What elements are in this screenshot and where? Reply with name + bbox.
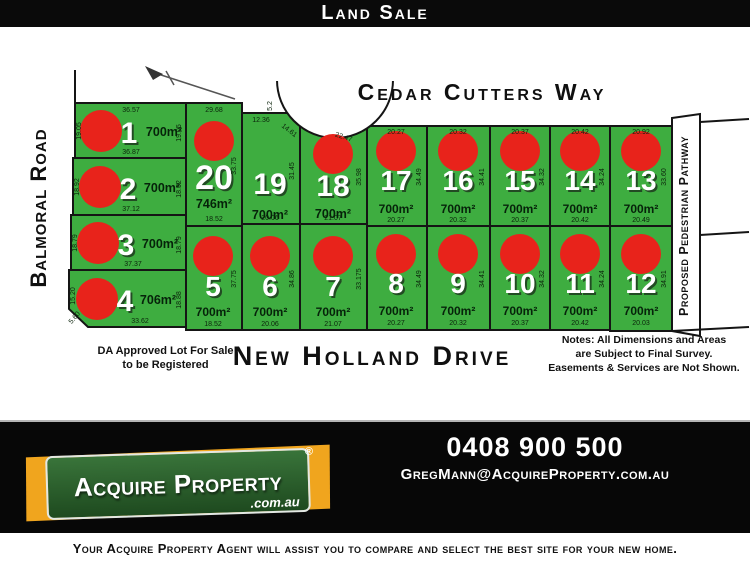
lot-14-number: 14 <box>564 165 596 196</box>
lot-8-area: 700m² <box>379 304 414 318</box>
lot-15-dim-top: 20.37 <box>511 129 529 136</box>
survey-note-line3: Easements & Services are Not Shown. <box>538 361 750 375</box>
lot-3-area: 700m² <box>142 237 178 251</box>
lot-2-dim-left: 18.92 <box>74 178 81 196</box>
survey-note-line2: are Subject to Final Survey. <box>538 347 750 361</box>
lot-4-dim-left: 15.20 <box>70 287 77 305</box>
lot-4-area: 706m² <box>140 293 176 307</box>
tagline-strip: Your Acquire Property Agent will assist … <box>0 533 750 563</box>
cul-de-sac-mask <box>275 27 397 81</box>
phone-number[interactable]: 0408 900 500 <box>370 432 700 463</box>
lot-12-number: 12 <box>625 268 656 299</box>
lot-17-area: 700m² <box>379 202 414 216</box>
lot-17-dim-bottom: 20.27 <box>387 217 405 224</box>
registered-trademark-icon: ® <box>305 446 313 458</box>
lot-3-dim-left: 18.79 <box>72 234 79 252</box>
da-approved-note: DA Approved Lot For Sale to be Registere… <box>88 344 243 372</box>
lot-8-number: 8 <box>388 268 404 299</box>
lot-20-dim-right: 33.75 <box>231 157 238 175</box>
lot-13-number: 13 <box>625 165 656 196</box>
lot-15-dim-right: 34.32 <box>539 168 546 186</box>
lot-5-dim-right: 37.75 <box>231 270 238 288</box>
lot-6-red-dot <box>250 236 290 276</box>
lot-5-dim-bottom: 18.52 <box>204 321 222 328</box>
lot-16-dim-bottom: 20.32 <box>449 217 467 224</box>
lot-15-area: 700m² <box>503 202 538 216</box>
lot-5-number: 5 <box>205 271 221 302</box>
lot-3-dim-right: 18.79 <box>176 236 183 254</box>
lot-6-dim-bottom: 20.06 <box>261 321 279 328</box>
lot-18-number: 18 <box>316 170 349 203</box>
survey-note-line1: Notes: All Dimensions and Areas <box>538 333 750 347</box>
lot-11-dim-bottom: 20.42 <box>571 320 589 327</box>
lot-4-number: 4 <box>117 285 134 318</box>
lot-14-dim-right: 34.24 <box>599 168 606 186</box>
lot-13-dim-top: 20.92 <box>632 129 650 136</box>
lot-2-dim-bottom: 37.12 <box>122 206 140 213</box>
street-cedar-cutters-way: Cedar Cutters Way <box>358 79 607 105</box>
email-address[interactable]: GregMann@AcquireProperty.com.au <box>370 466 700 483</box>
lot-11-dim-right: 34.24 <box>599 270 606 288</box>
lot-18-dim-bottom: 21.07 <box>324 215 342 222</box>
lot-9-dim-bottom: 20.32 <box>449 320 467 327</box>
lot-16-dim-right: 34.41 <box>479 168 486 186</box>
lot-9-number: 9 <box>450 268 466 299</box>
lot-15-number: 15 <box>504 165 535 196</box>
lot-16-area: 700m² <box>441 202 476 216</box>
da-note-line1: DA Approved Lot For Sale <box>88 344 243 358</box>
boundary-tick-top <box>700 119 749 122</box>
street-new-holland-drive: New Holland Drive <box>233 341 512 371</box>
lot-7-area: 700m² <box>316 305 351 319</box>
page-title: Land Sale <box>321 2 428 25</box>
lot-10-dim-bottom: 20.37 <box>511 320 529 327</box>
lot-5-area: 700m² <box>196 305 231 319</box>
header-bar: Land Sale <box>0 0 750 27</box>
lot-1-dim-left: 19.05 <box>76 122 83 140</box>
lot-1-number: 1 <box>121 117 138 150</box>
lot-20-number: 20 <box>195 159 233 197</box>
lot-10-dim-right: 34.32 <box>539 270 546 288</box>
da-note-line2: to be Registered <box>88 358 243 372</box>
lot-2-red-dot <box>79 166 121 208</box>
lot-17-dim-right: 34.49 <box>416 168 423 186</box>
lot-15-dim-bottom: 20.37 <box>511 217 529 224</box>
lot-2-area: 700m² <box>144 181 180 195</box>
street-balmoral-road: Balmoral Road <box>26 128 51 287</box>
lot-18-dim-right: 35.98 <box>356 168 363 186</box>
lot-11-number: 11 <box>565 268 595 299</box>
boundary-tick-middle <box>700 232 749 235</box>
proposed-pedestrian-pathway-label: Proposed Pedestrian Pathway <box>677 136 691 316</box>
lot-10-area: 700m² <box>503 304 538 318</box>
lot-12-dim-right: 34.91 <box>661 270 668 288</box>
contact-block: 0408 900 500 GregMann@AcquireProperty.co… <box>370 432 700 483</box>
lot-19-dim-right: 31.45 <box>289 162 296 180</box>
lot-19-dim-top: 12.36 <box>252 117 270 124</box>
acquire-property-logo: Acquire Property ® .com.au <box>24 439 336 527</box>
logo-domain: .com.au <box>250 494 300 511</box>
survey-notes: Notes: All Dimensions and Areas are Subj… <box>538 333 750 375</box>
logo-green-plate: Acquire Property ® .com.au <box>45 448 311 520</box>
lot-14-area: 700m² <box>563 202 598 216</box>
lot-2-dim-right: 18.92 <box>176 180 183 198</box>
lot-19-dim-bottom: 20.06 <box>261 215 279 222</box>
lot-13-dim-right: 33.60 <box>661 168 668 186</box>
lot-16-dim-top: 20.32 <box>449 129 467 136</box>
lot-12-area: 700m² <box>624 304 659 318</box>
tagline-text: Your Acquire Property Agent will assist … <box>73 541 678 556</box>
lot-7-red-dot <box>313 236 353 276</box>
lot-5-red-dot <box>193 236 233 276</box>
lot-7-number: 7 <box>325 271 341 302</box>
lot-20-dim-bottom: 18.52 <box>205 216 223 223</box>
lot-13-area: 700m² <box>624 202 659 216</box>
lot-12-dim-bottom: 20.03 <box>632 320 650 327</box>
lot-10-number: 10 <box>504 268 535 299</box>
lot-20-dim-top: 29.68 <box>205 107 223 114</box>
lot-11-area: 700m² <box>563 304 598 318</box>
lot-4-dim-right: 18.88 <box>176 291 183 309</box>
lot-4-dim-bottom: 33.62 <box>131 318 149 325</box>
lot-6-number: 6 <box>262 271 278 302</box>
lot-14-dim-bottom: 20.42 <box>571 217 589 224</box>
lot-3-number: 3 <box>118 229 135 262</box>
lot-6-area: 700m² <box>253 305 288 319</box>
lot-8-dim-bottom: 20.27 <box>387 320 405 327</box>
lot-19-dim-step: 5.2 <box>267 101 274 111</box>
north-arrow-icon <box>145 66 235 99</box>
lot-3-dim-bottom: 37.37 <box>124 261 142 268</box>
lot-9-dim-right: 34.41 <box>479 270 486 288</box>
lot-17-number: 17 <box>380 165 411 196</box>
lot-13-dim-bottom: 20.49 <box>632 217 650 224</box>
lot-1-red-dot <box>80 110 122 152</box>
lot-1-dim-top: 36.57 <box>122 107 140 114</box>
lot-4-red-dot <box>76 278 118 320</box>
lot-1-dim-right: 19.05 <box>176 124 183 142</box>
lot-1-dim-bottom: 36.87 <box>122 149 140 156</box>
lot-20-red-dot <box>194 121 234 161</box>
lot-16-number: 16 <box>442 165 473 196</box>
lot-2-number: 2 <box>120 173 137 206</box>
lot-17-dim-top: 20.27 <box>387 129 405 136</box>
lot-14-dim-top: 20.42 <box>571 129 589 136</box>
lot-7-dim-bottom: 21.07 <box>324 321 342 328</box>
footer-band: Acquire Property ® .com.au 0408 900 500 … <box>0 420 750 535</box>
lot-19-number: 19 <box>253 168 286 201</box>
lot-6-dim-right: 34.86 <box>289 270 296 288</box>
lot-3-red-dot <box>77 222 119 264</box>
land-sale-flyer: Land Sale 11700m²36.5719.0519.0536.87227… <box>0 0 750 563</box>
lot-9-area: 700m² <box>441 304 476 318</box>
lot-8-dim-right: 34.49 <box>416 270 423 288</box>
lot-7-dim-right: 33.175 <box>356 268 363 290</box>
lot-20-area: 746m² <box>196 197 232 211</box>
